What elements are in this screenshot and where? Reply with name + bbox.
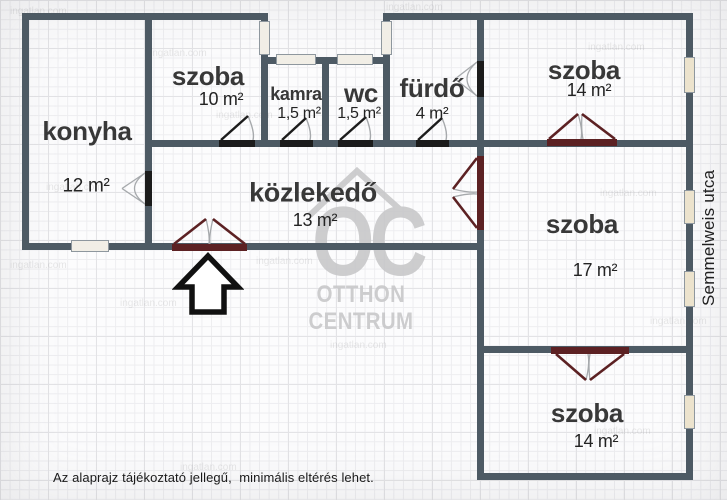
- room-area-szoba17: 17 m²: [573, 261, 618, 279]
- window-szoba14b-east: [684, 395, 695, 429]
- window-kamra-north: [276, 54, 316, 65]
- photo-watermark: ingatlan.com: [150, 48, 207, 59]
- watermark-line2: CENTRUM: [309, 308, 414, 336]
- window-szoba-east-jog: [259, 21, 270, 55]
- window-szoba17-east-1: [684, 190, 695, 224]
- room-area-szoba14: 14 m²: [567, 81, 612, 99]
- room-name-szoba14b: szoba: [551, 400, 623, 426]
- floor-plan: OC OTTHON CENTRUM: [0, 0, 727, 500]
- room-area-furdo: 4 m²: [416, 105, 449, 122]
- window-konyha-south: [71, 240, 109, 252]
- photo-watermark: ingatlan.com: [256, 256, 313, 267]
- photo-watermark: ingatlan.com: [588, 42, 645, 53]
- double-door-entrance: [170, 214, 249, 252]
- photo-watermark: ingatlan.com: [10, 6, 67, 17]
- room-area-wc: 1,5 m²: [337, 106, 381, 122]
- room-name-szoba10: szoba: [172, 63, 244, 89]
- street-label: Semmelweis utca: [699, 162, 721, 314]
- room-name-konyha: konyha: [42, 118, 131, 144]
- window-wc-north: [337, 54, 373, 65]
- photo-watermark: ingatlan.com: [180, 462, 237, 473]
- room-name-kozlekedo: közlekedő: [249, 180, 377, 207]
- photo-watermark: ingatlan.com: [386, 2, 443, 13]
- photo-watermark: ingatlan.com: [216, 110, 273, 121]
- photo-watermark: ingatlan.com: [330, 340, 387, 351]
- photo-watermark: ingatlan.com: [120, 298, 177, 309]
- room-area-kozlekedo: 13 m²: [293, 211, 338, 229]
- double-door-szoba17: [448, 153, 485, 233]
- photo-watermark: ingatlan.com: [594, 426, 651, 437]
- wall-outer-bottom-east: [477, 473, 693, 480]
- double-door-szoba14-north: [545, 108, 619, 147]
- room-name-furdo: fürdő: [400, 75, 465, 101]
- wall-outer-top-right: [383, 13, 693, 20]
- room-area-szoba10: 10 m²: [199, 90, 244, 108]
- watermark-line1: OTTHON: [317, 281, 406, 309]
- photo-watermark: ingatlan.com: [46, 182, 103, 193]
- room-area-kamra: 1,5 m²: [277, 106, 321, 122]
- window-szoba17-east-2: [684, 271, 695, 307]
- room-name-kamra: kamra: [270, 85, 322, 103]
- room-name-wc: wc: [344, 80, 378, 106]
- wall-kamra-wc: [322, 57, 329, 147]
- wall-outer-left: [22, 13, 29, 250]
- photo-watermark: ingatlan.com: [600, 188, 657, 199]
- window-furdo-west-jog: [381, 21, 392, 55]
- window-szoba14-east: [684, 57, 695, 93]
- photo-watermark: ingatlan.com: [10, 260, 67, 271]
- photo-watermark: ingatlan.com: [650, 316, 707, 327]
- door-konyha: [118, 170, 153, 207]
- entrance-arrow-icon: [172, 252, 244, 316]
- double-door-szoba14-south: [549, 346, 631, 386]
- room-name-szoba17: szoba: [546, 211, 618, 237]
